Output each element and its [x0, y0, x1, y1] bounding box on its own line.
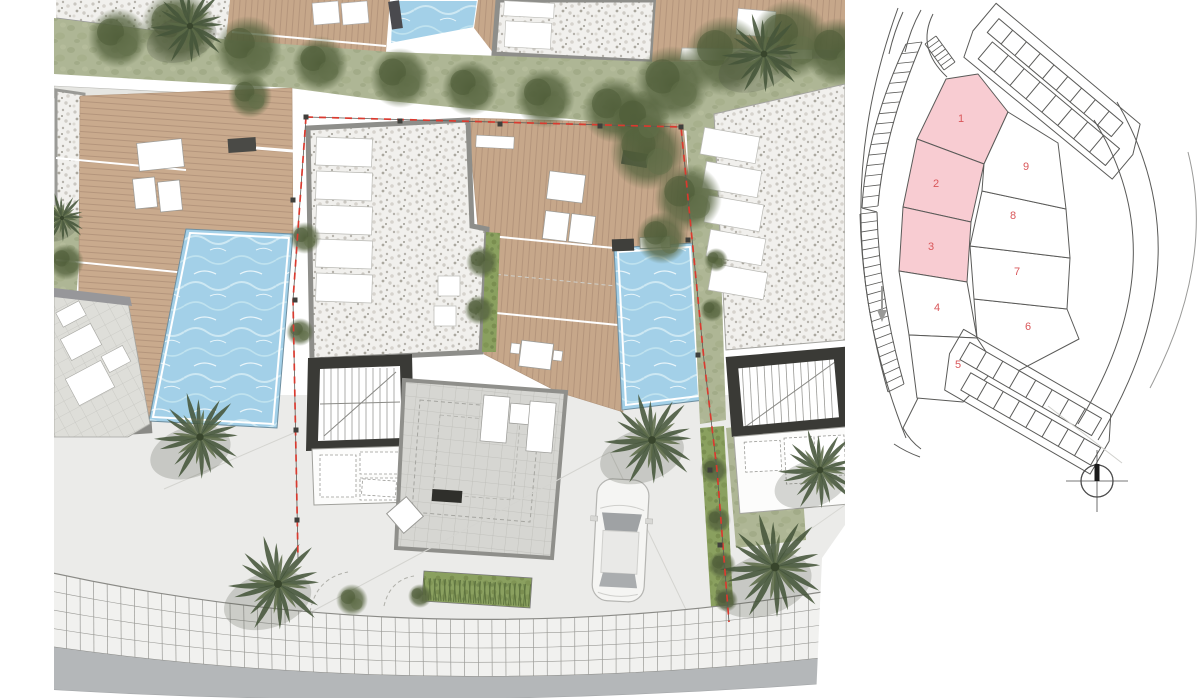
grid-line	[886, 92, 903, 94]
plot-number-6: 6	[1025, 321, 1031, 333]
mirror	[591, 516, 598, 521]
grid-line	[869, 153, 886, 155]
sun-lounger	[341, 1, 369, 25]
grid-line	[871, 143, 888, 145]
grid-line	[860, 212, 877, 214]
grid-line	[866, 282, 883, 286]
detailed-site-plan	[30, 0, 872, 698]
fence-post	[598, 124, 603, 129]
mirror	[645, 519, 652, 524]
skylight	[316, 239, 373, 269]
grid-line	[941, 58, 952, 66]
grid-line	[865, 273, 882, 277]
tree-canopy	[48, 244, 84, 280]
plot-number-8: 8	[1010, 210, 1016, 222]
plot-number-2: 2	[933, 178, 939, 190]
tree-canopy	[804, 18, 872, 86]
furniture-dashed	[360, 452, 400, 474]
skylights	[316, 137, 373, 303]
fence-post	[498, 122, 503, 127]
grid-line	[944, 62, 955, 70]
grid-line	[889, 82, 906, 84]
grid-line	[863, 195, 879, 197]
grid-line	[883, 367, 899, 374]
fence-post	[718, 543, 723, 548]
sun-lounger	[137, 139, 185, 172]
skylight	[316, 205, 373, 235]
furniture-dashed	[744, 440, 782, 472]
grid-line	[879, 112, 896, 114]
grid-line	[865, 174, 882, 176]
rear-window	[599, 572, 638, 588]
tree-canopy	[370, 48, 430, 108]
rooflight	[438, 276, 460, 296]
fence-post	[291, 198, 296, 203]
grid-line	[897, 62, 914, 64]
central-gravel-roof-building	[308, 120, 500, 360]
grid-line	[893, 72, 910, 74]
grid-line	[864, 185, 881, 187]
grid-line	[888, 384, 904, 392]
plot-number-3: 3	[928, 241, 934, 253]
tree-canopy	[700, 298, 724, 322]
table	[361, 479, 396, 497]
fence-post	[304, 115, 309, 120]
gate	[228, 137, 257, 153]
grid-line	[861, 229, 878, 232]
tree-canopy	[515, 68, 575, 128]
furniture-dashed	[320, 455, 356, 497]
plot-number-5: 5	[955, 359, 961, 371]
bench	[432, 489, 463, 503]
skylight	[504, 21, 551, 49]
north-compass-icon	[1066, 450, 1128, 512]
fence-post	[398, 119, 403, 124]
plot-number-4: 4	[934, 302, 940, 314]
fence-post	[679, 125, 684, 130]
north-needle	[1095, 464, 1100, 481]
grid-line	[862, 247, 879, 250]
bench	[476, 135, 515, 149]
grid-line	[906, 42, 922, 44]
fence-post	[294, 428, 299, 433]
sun-lounger	[480, 395, 510, 443]
car	[586, 478, 654, 603]
grid-line	[928, 40, 939, 48]
tree-canopy	[408, 584, 432, 608]
plot-number-1: 1	[958, 113, 964, 125]
skylight	[316, 171, 373, 201]
tree-canopy	[214, 16, 282, 84]
car-roof	[601, 530, 639, 574]
tree-canopy	[88, 8, 148, 68]
sun-lounger	[312, 1, 340, 25]
grid-line	[864, 264, 881, 268]
fence-post	[686, 238, 691, 243]
tree-canopy	[336, 584, 368, 616]
plot-number-7: 7	[1014, 266, 1020, 278]
sun-lounger	[526, 401, 556, 453]
location-key-plan: 1 2 3 4 5 6 7 8 9	[860, 3, 1196, 512]
sun-lounger	[568, 214, 595, 245]
skylight	[504, 1, 555, 19]
grid-line	[877, 342, 893, 349]
tree-canopy	[610, 90, 670, 150]
tree-canopy	[466, 246, 498, 278]
windshield	[601, 512, 642, 532]
sun-lounger	[132, 177, 157, 209]
pool-step	[612, 239, 634, 252]
fence-post	[295, 518, 300, 523]
tree-canopy	[704, 248, 728, 272]
sun-lounger	[546, 171, 585, 203]
rooflight	[434, 306, 456, 326]
grid-line	[871, 316, 888, 322]
tree-canopy	[705, 507, 731, 533]
grid-line	[935, 49, 946, 57]
grid-line	[873, 325, 889, 331]
tree-canopy	[464, 295, 494, 325]
grid-line	[881, 359, 897, 366]
grid-line	[861, 238, 878, 241]
sun-lounger	[157, 180, 182, 212]
grid-line	[876, 122, 893, 124]
tree-canopy	[442, 60, 498, 116]
grid-line	[882, 102, 899, 104]
tree-canopy	[700, 456, 728, 484]
grid-line	[902, 52, 918, 54]
grid-line	[862, 206, 878, 208]
grid-line	[873, 133, 890, 135]
grid-line	[867, 164, 884, 166]
grid-line	[931, 45, 942, 53]
grid-line	[886, 376, 902, 384]
plot-number-9: 9	[1023, 161, 1029, 173]
fence-post	[696, 353, 701, 358]
tree-canopy	[292, 36, 348, 92]
skylight	[316, 137, 373, 167]
skylight	[316, 273, 373, 303]
grid-line	[860, 221, 877, 223]
tree-canopy	[636, 212, 688, 264]
tree-canopy	[289, 222, 321, 254]
tree-canopy	[286, 318, 314, 346]
grid-line	[879, 350, 895, 357]
grid-line	[938, 53, 949, 61]
tree-canopy	[228, 74, 272, 118]
sun-lounger	[542, 211, 569, 242]
site-plan-sheet: 1 2 3 4 5 6 7 8 9	[0, 0, 1200, 698]
plan-canvas: 1 2 3 4 5 6 7 8 9	[0, 0, 1200, 698]
grid-line	[863, 256, 880, 260]
grid-line	[875, 333, 891, 339]
fence-post	[708, 468, 713, 473]
fence-post	[293, 298, 298, 303]
